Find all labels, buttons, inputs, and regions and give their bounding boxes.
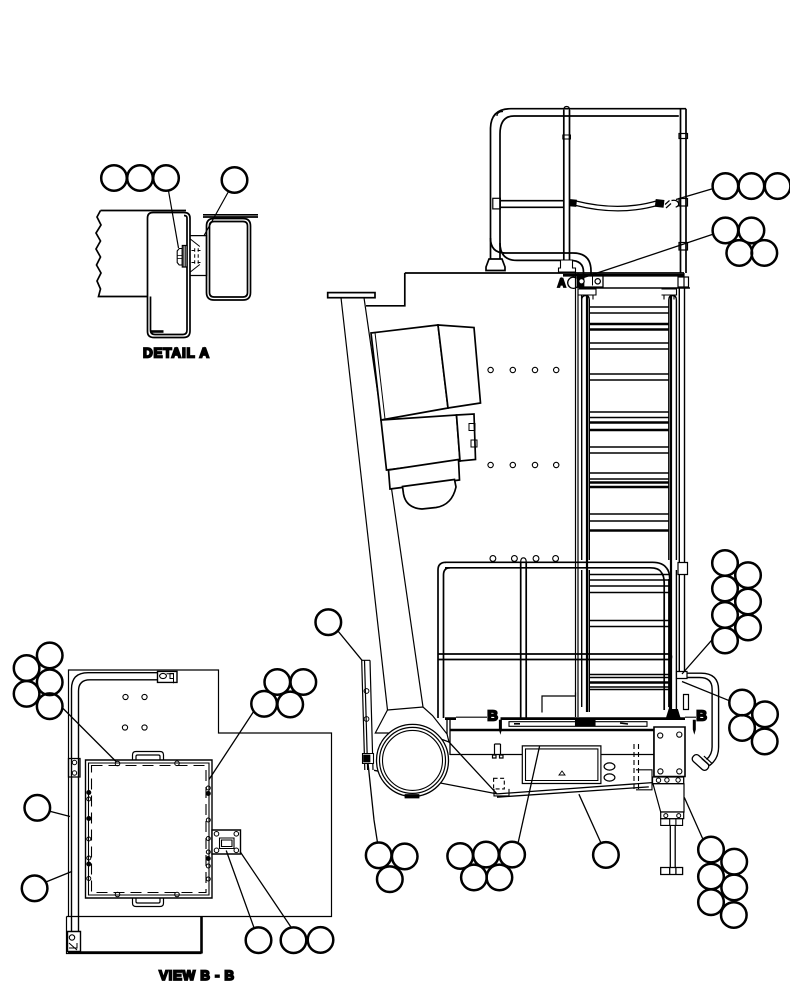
svg-text:B: B bbox=[487, 708, 498, 725]
svg-text:VIEW B - B: VIEW B - B bbox=[159, 968, 235, 981]
svg-text:A: A bbox=[558, 278, 566, 290]
svg-text:DETAIL A: DETAIL A bbox=[143, 346, 210, 361]
svg-text:B: B bbox=[696, 707, 707, 724]
